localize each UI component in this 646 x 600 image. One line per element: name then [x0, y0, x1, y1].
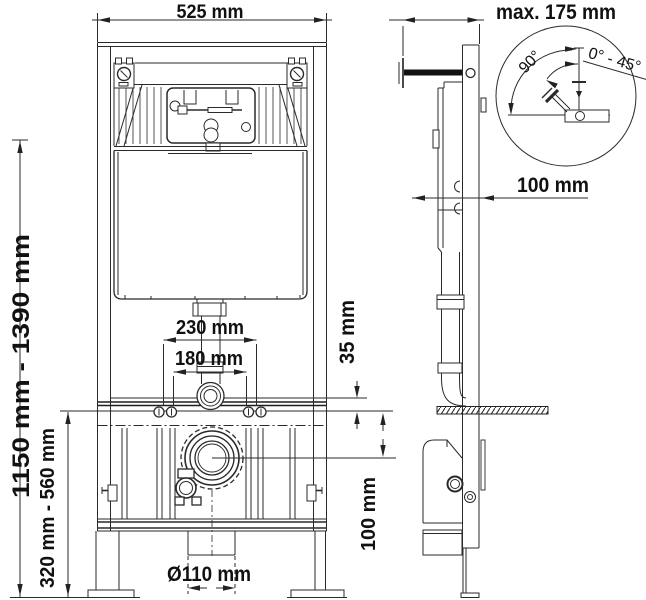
dim-wall-distance: 100 mm: [517, 174, 589, 197]
mounting-bracket-left: [114, 58, 134, 88]
side-foot: [423, 530, 479, 598]
angle-detail: [496, 26, 646, 166]
dim-front-width: 525 mm: [177, 2, 244, 23]
cistern-body: [114, 147, 307, 300]
cistern-profile: [433, 82, 462, 295]
flush-pipe-profile: [437, 295, 466, 406]
dim-depth-max: max. 175 mm: [496, 1, 616, 24]
dim-height-range: 1150 mm - 1390 mm: [8, 234, 35, 498]
swivel-bracket: [565, 110, 609, 122]
dim-bolt-outer: 230 mm: [176, 317, 244, 339]
inspection-opening: [167, 88, 255, 154]
threaded-rod: [437, 407, 548, 415]
flush-pipe: [193, 299, 226, 384]
dim-leg-range: 320 mm - 560 mm: [37, 428, 59, 588]
dimension-arrows: [17, 17, 582, 596]
dim-drain-height: 100 mm: [358, 477, 380, 551]
drain-housing: [423, 440, 485, 523]
label-swing-angle: 90°: [516, 48, 545, 77]
label-angle-range: 0° - 45°: [586, 45, 642, 76]
mounting-bracket-right: [287, 58, 307, 88]
flush-bend: [197, 383, 224, 410]
technical-drawing-page: 525 mm max. 175 mm 100 mm 1150 mm - 1390…: [0, 0, 646, 600]
wc-frame-installation-drawing: 525 mm max. 175 mm 100 mm 1150 mm - 1390…: [0, 0, 646, 600]
rail-clip-right: [307, 485, 322, 501]
dim-rail-gap: 35 mm: [336, 300, 359, 364]
dim-bolt-inner: 180 mm: [175, 348, 243, 370]
dimensions: 525 mm max. 175 mm 100 mm 1150 mm - 1390…: [8, 1, 643, 597]
side-view: [399, 45, 548, 598]
dim-drain-diameter: Ø110 mm: [167, 563, 251, 586]
rail-clip-left: [102, 485, 117, 501]
angled-bolt: [542, 88, 570, 112]
